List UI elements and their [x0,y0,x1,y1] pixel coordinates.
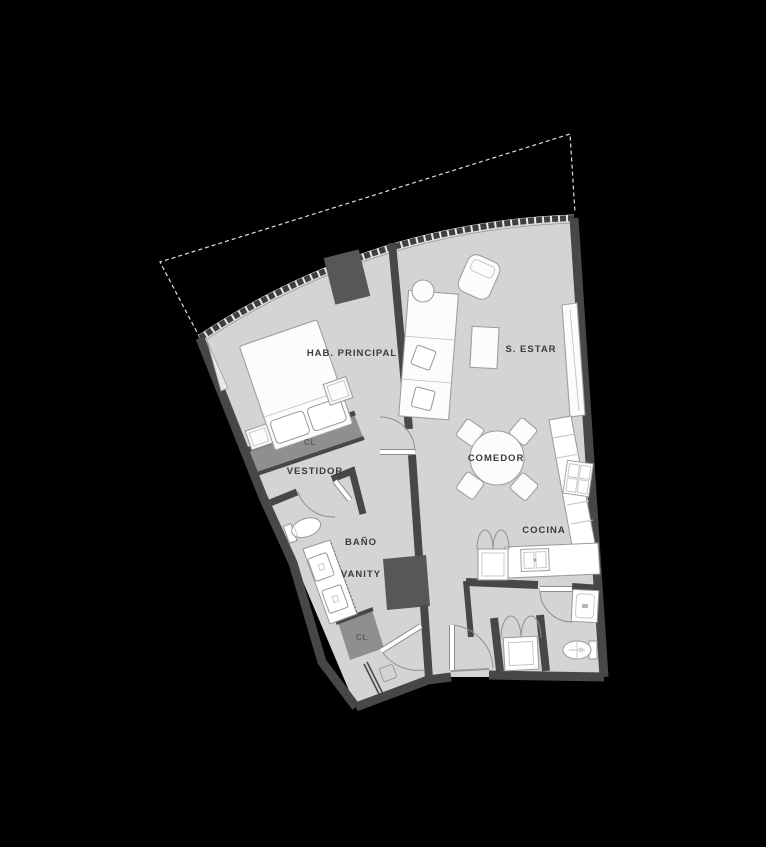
label-bathroom: BAÑO [345,537,377,548]
stove [563,460,593,496]
half-bath-toilet [563,641,597,659]
side-table [412,280,434,302]
kitchen-south-wall-right [572,587,601,589]
half-bath-sink [571,589,599,622]
kitchen-counter-bottom [505,543,600,578]
bottom-wall-right [489,675,604,677]
label-walk-in-closet: VESTIDOR [287,466,344,477]
floor-plan-canvas: HAB. PRINCIPAL S. ESTAR COMEDOR COCINA V… [0,0,766,847]
label-kitchen: COCINA [522,525,565,536]
kitchen-sink [521,549,550,572]
label-living-room: S. ESTAR [505,344,556,355]
shaft-block [383,555,430,610]
shower-east-wall [424,605,429,679]
sofa-pillow-2 [411,387,435,411]
washer [503,636,539,671]
floor-plan-svg: HAB. PRINCIPAL S. ESTAR COMEDOR COCINA V… [0,0,766,847]
label-master-bedroom: HAB. PRINCIPAL [307,348,397,359]
coffee-table [470,326,499,368]
label-closet-bedroom: CL [304,437,316,447]
label-vanity: VANITY [341,569,381,580]
label-closet-hall: CL [356,632,368,642]
sofa-desk [399,290,459,420]
kitchen-south-wall-left [466,582,538,585]
label-dining-room: COMEDOR [468,453,525,464]
